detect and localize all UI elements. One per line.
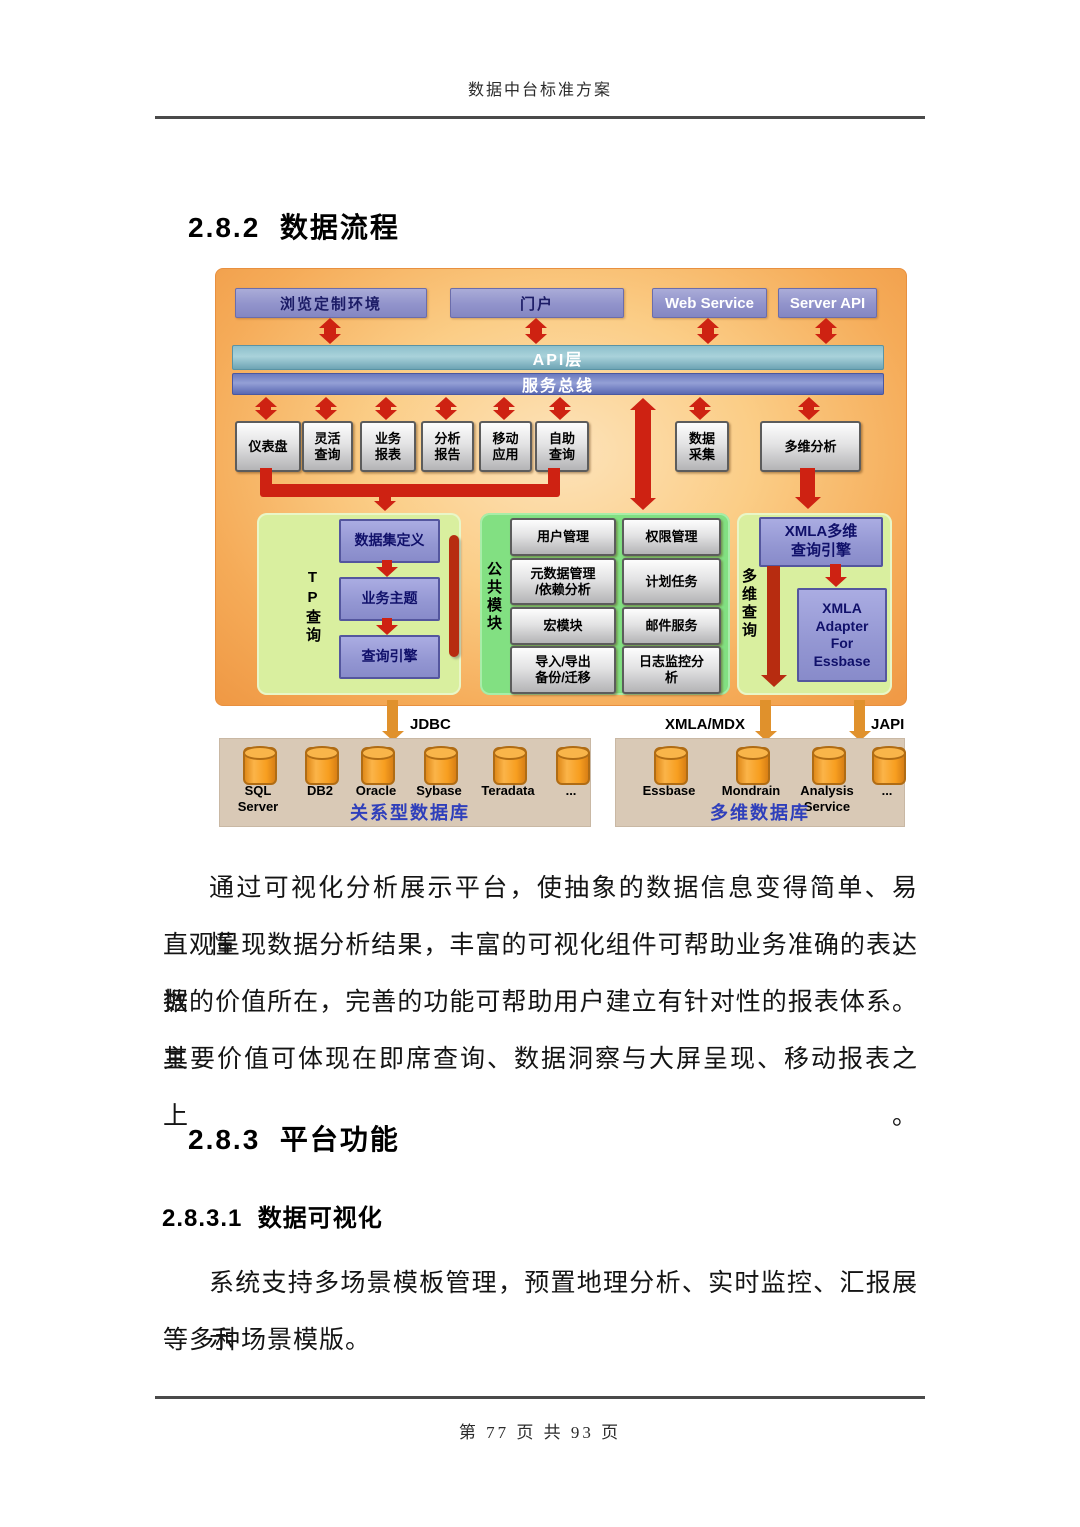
database-cylinder-icon: [872, 747, 906, 785]
database-cylinder-icon: [243, 747, 277, 785]
top-box-web-service: Web Service: [652, 288, 767, 318]
japi-arrow-icon: [854, 700, 865, 732]
bracket-bar: [260, 484, 560, 497]
tp-box-query-engine: 查询引擎: [339, 635, 440, 679]
footer-rule: [155, 1396, 925, 1399]
jdbc-arrow-icon: [387, 700, 398, 732]
top-box-portal: 门户: [450, 288, 624, 318]
japi-label: JAPI: [871, 716, 904, 733]
md-long-down-arrow-icon: [767, 566, 780, 676]
connector-down-arrow-icon: [382, 560, 392, 568]
app-box-business-report: 业务 报表: [360, 421, 416, 472]
engine-to-adapter-arrow-icon: [830, 564, 841, 578]
double-arrow-icon: [498, 406, 509, 411]
service-bus-bar: 服务总线: [232, 373, 884, 395]
tp-red-bar: [449, 535, 459, 657]
app-box-dashboard: 仪表盘: [235, 421, 301, 472]
app-box-flexible-query: 灵活 查询: [302, 421, 353, 472]
tp-box-dataset-definition: 数据集定义: [339, 519, 440, 563]
common-panel-title: 公共模块: [486, 561, 501, 633]
database-cylinder-icon: [424, 747, 458, 785]
common-box-mail-service: 邮件服务: [622, 607, 721, 645]
double-arrow-icon: [324, 327, 336, 335]
paragraph-line: 等多种场景模版。: [163, 1312, 918, 1369]
common-modules-panel: 公共模块 用户管理 元数据管理 /依赖分析 宏模块 导入/导出 备份/迁移 权限…: [480, 513, 730, 695]
db-label-essbase: Essbase: [643, 783, 696, 799]
xmla-mdx-arrow-icon: [760, 700, 771, 732]
double-arrow-icon: [694, 406, 705, 411]
double-arrow-icon: [803, 406, 814, 411]
relational-db-panel: SQL Server DB2 Oracle Sybase Teradata ..…: [219, 738, 591, 827]
md-box-xmla-engine: XMLA多维 查询引擎: [759, 517, 883, 567]
section-heading-283: 2.8.3 平台功能: [188, 1118, 400, 1158]
multidim-down-arrow-icon: [800, 468, 815, 498]
double-arrow-icon: [320, 406, 331, 411]
db-label-mondrain: Mondrain: [722, 783, 781, 799]
common-box-macro-module: 宏模块: [510, 607, 616, 645]
page-header-title: 数据中台标准方案: [0, 76, 1080, 100]
app-box-analysis-report: 分析 报告: [421, 421, 474, 472]
section-heading-2831: 2.8.3.1 数据可视化: [162, 1198, 383, 1233]
bracket-down-arrow-icon: [379, 495, 391, 502]
md-panel-title: 多维查询: [741, 568, 756, 640]
api-layer-bar: API层: [232, 345, 884, 370]
database-cylinder-icon: [361, 747, 395, 785]
md-box-xmla-adapter: XMLA Adapter For Essbase: [797, 588, 887, 682]
database-cylinder-icon: [654, 747, 688, 785]
body-paragraph-2: 系统支持多场景模板管理，预置地理分析、实时监控、汇报展示 等多种场景模版。: [163, 1255, 918, 1369]
multidim-db-panel: Essbase Mondrain Analysis Service ... 多维…: [615, 738, 905, 827]
header-rule: [155, 116, 925, 119]
database-cylinder-icon: [493, 747, 527, 785]
double-arrow-icon: [380, 406, 391, 411]
bus-to-common-double-arrow-icon: [635, 409, 651, 499]
double-arrow-icon: [530, 327, 542, 335]
double-arrow-icon: [820, 327, 832, 335]
common-box-user-mgmt: 用户管理: [510, 518, 616, 556]
document-page: 数据中台标准方案 2.8.2 数据流程 浏览定制环境 门户 Web Servic…: [0, 0, 1080, 1527]
xmla-mdx-label: XMLA/MDX: [665, 716, 745, 733]
database-cylinder-icon: [305, 747, 339, 785]
double-arrow-icon: [702, 327, 714, 335]
db-label-db2: DB2: [307, 783, 333, 799]
common-box-scheduled-tasks: 计划任务: [622, 558, 721, 605]
common-box-permission-mgmt: 权限管理: [622, 518, 721, 556]
paragraph-line: 主要价值可体现在即席查询、数据洞察与大屏呈现、移动报表之上。: [163, 1031, 918, 1088]
common-box-metadata-mgmt: 元数据管理 /依赖分析: [510, 558, 616, 605]
db-label-teradata: Teradata: [481, 783, 534, 799]
db-label-ellipsis: ...: [882, 783, 893, 799]
jdbc-label: JDBC: [410, 716, 451, 733]
tp-box-business-topic: 业务主题: [339, 577, 440, 621]
app-box-mobile-app: 移动 应用: [479, 421, 532, 472]
app-box-multidim-analysis: 多维分析: [760, 421, 861, 472]
body-paragraph-1: 通过可视化分析展示平台，使抽象的数据信息变得简单、易懂， 直观呈现数据分析结果，…: [163, 860, 918, 1088]
app-box-self-service-query: 自助 查询: [535, 421, 589, 472]
connector-down-arrow-icon: [382, 618, 392, 626]
common-box-log-monitoring: 日志监控分 析: [622, 646, 721, 694]
top-box-server-api: Server API: [778, 288, 877, 318]
paragraph-line: 直观呈现数据分析结果，丰富的可视化组件可帮助业务准确的表达数: [163, 917, 918, 974]
double-arrow-icon: [260, 406, 271, 411]
relational-db-caption: 关系型数据库: [310, 799, 510, 825]
paragraph-line: 系统支持多场景模板管理，预置地理分析、实时监控、汇报展示: [163, 1255, 918, 1312]
db-label-sybase: Sybase: [416, 783, 462, 799]
double-arrow-icon: [554, 406, 565, 411]
app-box-data-collection: 数据 采集: [675, 421, 729, 472]
common-box-import-export: 导入/导出 备份/迁移: [510, 646, 616, 694]
database-cylinder-icon: [556, 747, 590, 785]
section-heading-282: 2.8.2 数据流程: [188, 206, 400, 246]
data-flow-diagram: 浏览定制环境 门户 Web Service Server API API层 服务…: [215, 268, 905, 825]
db-label-ellipsis: ...: [566, 783, 577, 799]
multidim-query-panel: XMLA多维 查询引擎 多维查询 XMLA Adapter For Essbas…: [737, 513, 892, 695]
database-cylinder-icon: [736, 747, 770, 785]
paragraph-line: 通过可视化分析展示平台，使抽象的数据信息变得简单、易懂，: [163, 860, 918, 917]
db-label-oracle: Oracle: [356, 783, 396, 799]
db-label-sql-server: SQL Server: [238, 783, 278, 814]
tp-query-panel: TP查询 数据集定义 业务主题 查询引擎: [257, 513, 461, 695]
top-box-browse-env: 浏览定制环境: [235, 288, 427, 318]
page-footer-number: 第 77 页 共 93 页: [0, 1418, 1080, 1443]
paragraph-line: 据的价值所在，完善的功能可帮助用户建立有针对性的报表体系。其: [163, 974, 918, 1031]
multidim-db-caption: 多维数据库: [660, 799, 860, 825]
database-cylinder-icon: [812, 747, 846, 785]
tp-panel-title: TP查询: [305, 569, 320, 645]
double-arrow-icon: [440, 406, 451, 411]
